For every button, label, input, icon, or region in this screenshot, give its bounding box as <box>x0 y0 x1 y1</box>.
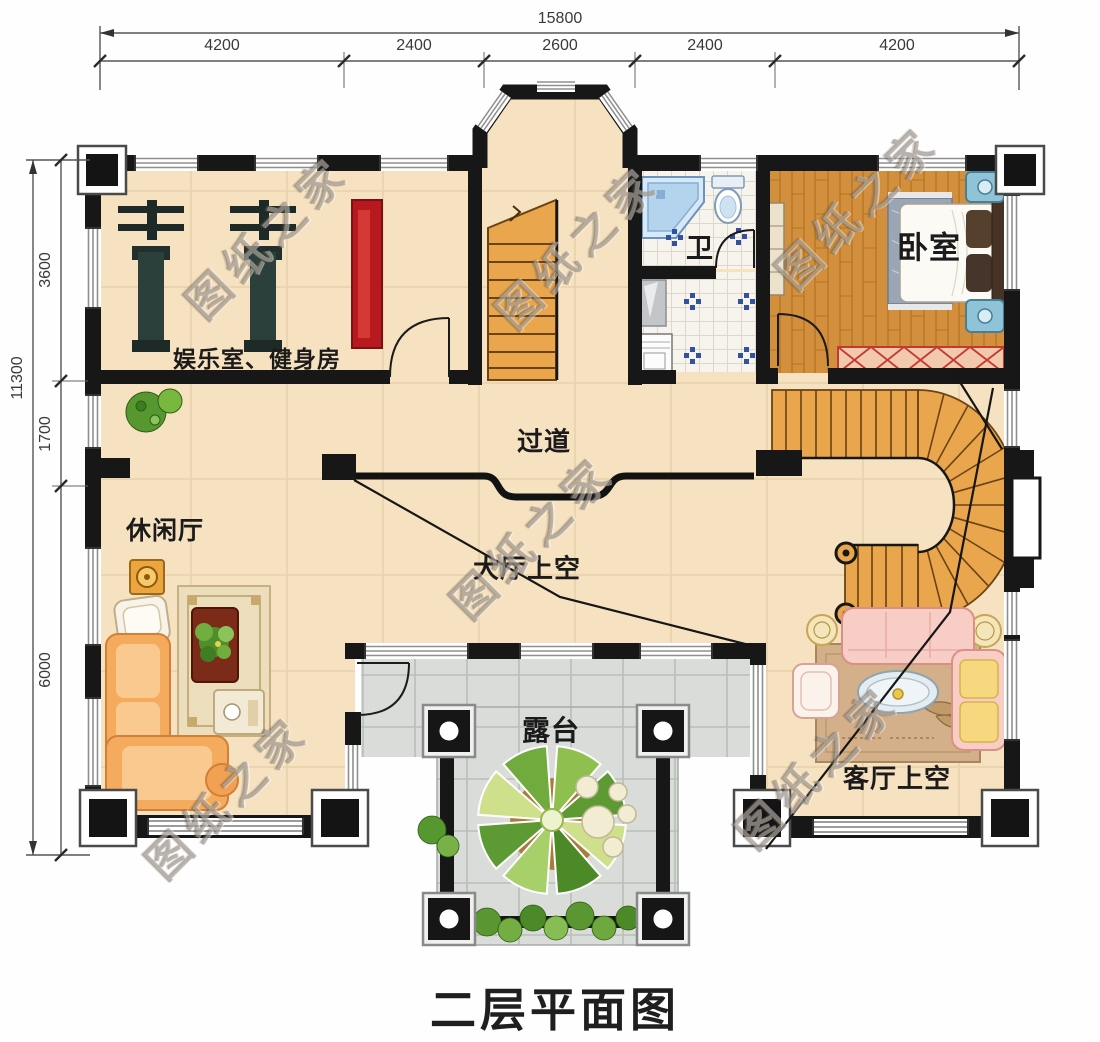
plant-icon <box>195 623 234 662</box>
right-bay-window <box>1012 478 1040 558</box>
dim-top-seg-1: 4200 <box>204 37 240 55</box>
toilet-icon <box>712 176 744 188</box>
washer-icon <box>638 334 672 374</box>
dim-top-seg-5: 4200 <box>879 37 915 55</box>
dim-left-total: 11300 <box>9 356 27 399</box>
dim-top-seg-2: 2400 <box>396 37 432 55</box>
floor-plan-page: 15800 4200 2400 2600 2400 4200 11300 360… <box>0 0 1100 1042</box>
dim-top-seg-3: 2600 <box>542 37 578 55</box>
dim-left-seg-3: 6000 <box>37 652 55 688</box>
dim-left-seg-2: 1700 <box>37 416 55 452</box>
room-label-bedroom: 卧室 <box>897 223 961 268</box>
room-label-entertainment: 娱乐室、健身房 <box>173 340 341 374</box>
page-title: 二层平面图 <box>430 974 680 1040</box>
room-label-bath: 卫 <box>686 227 714 266</box>
dim-top-seg-4: 2400 <box>687 37 723 55</box>
room-label-corridor: 过道 <box>517 422 571 459</box>
room-label-terrace: 露台 <box>522 709 580 749</box>
terrace-rail-right <box>656 757 670 897</box>
dim-left-seg-1: 3600 <box>37 252 55 288</box>
dim-top-total: 15800 <box>538 10 583 28</box>
room-label-leisure: 休闲厅 <box>126 511 204 547</box>
